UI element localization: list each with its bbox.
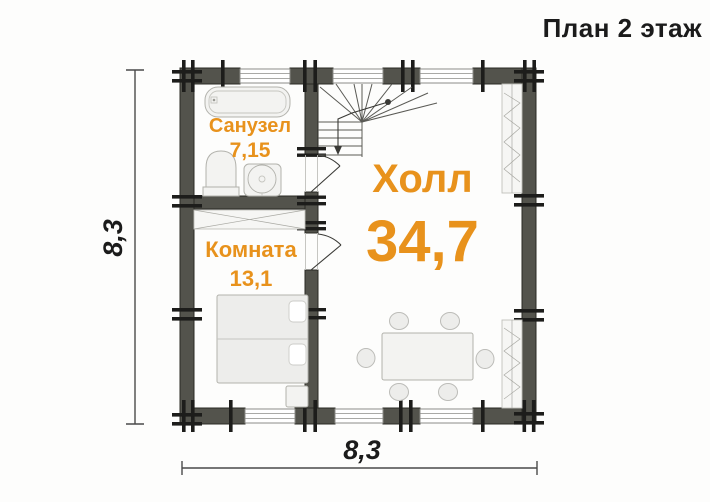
room-label-bathroom: Санузел 7,15 <box>188 114 312 163</box>
window-icon <box>335 409 383 423</box>
shelving-icon <box>502 84 522 193</box>
shelving-icon <box>502 320 522 408</box>
bedroom-area: 13,1 <box>188 266 314 292</box>
bathroom-area: 7,15 <box>188 138 312 163</box>
room-label-hall: Холл 34,7 <box>340 158 505 272</box>
window-icon <box>245 409 295 423</box>
chair-icon <box>476 350 494 369</box>
dimension-label-left: 8,3 <box>98 208 128 268</box>
window-icon <box>333 69 383 83</box>
hall-area: 34,7 <box>340 212 505 272</box>
floor-plan-page: План 2 этаж Санузел 7,15 Комната 13,1 Хо… <box>0 0 710 502</box>
page-title: План 2 этаж <box>543 13 702 44</box>
sink-icon <box>244 164 281 196</box>
room-label-bedroom: Комната 13,1 <box>188 237 314 292</box>
dimension-line-left <box>126 70 144 424</box>
chair-icon <box>357 349 375 368</box>
dining-table-icon <box>382 333 473 380</box>
chair-icon <box>390 313 409 330</box>
wardrobe-icon <box>194 210 305 229</box>
chair-icon <box>439 384 458 401</box>
bed-icon <box>217 295 308 383</box>
bedroom-name: Комната <box>188 237 314 263</box>
chair-icon <box>390 384 409 401</box>
hall-name: Холл <box>340 158 505 200</box>
window-icon <box>420 69 473 83</box>
dimension-label-bottom: 8,3 <box>312 435 412 466</box>
bathtub-icon <box>205 87 290 117</box>
chair-icon <box>441 313 460 330</box>
bathroom-name: Санузел <box>188 114 312 138</box>
window-icon <box>420 409 473 423</box>
window-icon <box>240 69 290 83</box>
nightstand-icon <box>286 386 308 407</box>
